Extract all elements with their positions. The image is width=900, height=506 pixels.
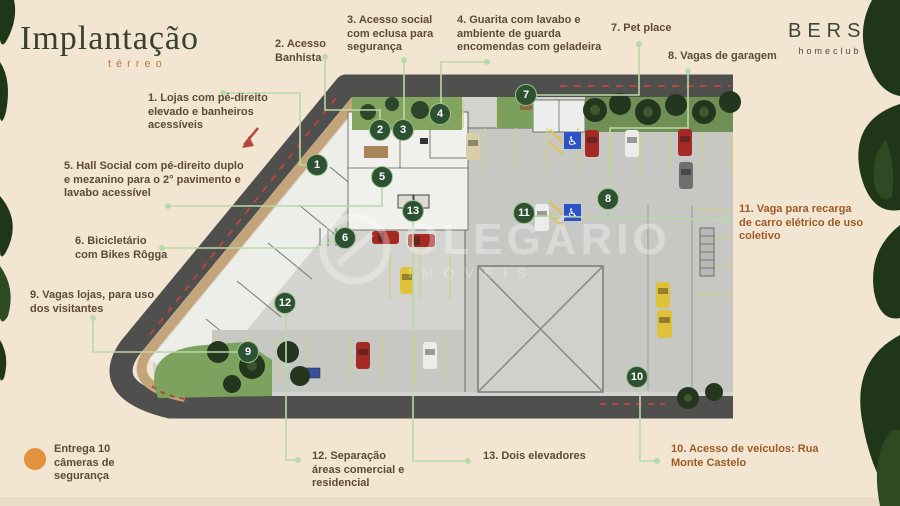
plan-marker-5: 5 — [371, 166, 393, 188]
plan-marker-13: 13 — [402, 200, 424, 222]
security-note-text: Entrega 10 câmeras de segurança — [54, 443, 138, 484]
annotation-label-4: 4. Guarita com lavabo e ambiente de guar… — [457, 14, 619, 55]
plan-marker-3: 3 — [392, 119, 414, 141]
plan-marker-7: 7 — [515, 84, 537, 106]
annotation-label-7: 7. Pet place — [611, 22, 721, 36]
annotation-label-2: 2. Acesso Banhista — [275, 38, 345, 65]
brand-logo: BERSI homeclub — [788, 20, 872, 56]
accessible-parking-icon: ♿ — [567, 134, 578, 148]
annotation-label-10: 10. Acesso de veículos: Rua Monte Castel… — [671, 443, 839, 470]
stairs — [700, 228, 714, 276]
brand-name: BERSI — [788, 20, 872, 43]
watermark-logo-icon — [318, 212, 392, 286]
plan-marker-4: 4 — [429, 103, 451, 125]
page-title: Implantação — [20, 20, 199, 58]
plan-marker-10: 10 — [626, 366, 648, 388]
annotation-label-1: 1. Lojas com pé-direito elevado e banhei… — [148, 92, 280, 133]
plan-marker-12: 12 — [274, 292, 296, 314]
annotation-label-6: 6. Bicicletário com Bikes Rôgga — [75, 235, 171, 262]
watermark: OLEGÁRIO IMÓVEIS — [318, 212, 671, 286]
annotation-label-11: 11. Vaga para recarga de carro elétrico … — [739, 203, 867, 244]
brand-tagline: homeclub — [788, 46, 872, 56]
watermark-subtitle: IMÓVEIS — [404, 265, 671, 281]
annotation-label-9: 9. Vagas lojas, para uso dos visitantes — [30, 289, 170, 316]
annotation-label-5: 5. Hall Social com pé-direito duplo e me… — [64, 160, 252, 201]
page: ♿ ♿ — [0, 0, 900, 506]
plan-marker-2: 2 — [369, 119, 391, 141]
watermark-name: OLEGÁRIO — [404, 218, 671, 262]
plan-marker-8: 8 — [597, 188, 619, 210]
annotation-label-3: 3. Acesso social com eclusa para seguran… — [347, 14, 451, 55]
page-subtitle: térreo — [108, 58, 167, 70]
plan-marker-11: 11 — [513, 202, 535, 224]
plan-marker-6: 6 — [334, 227, 356, 249]
plan-marker-1: 1 — [306, 154, 328, 176]
annotation-label-12: 12. Separação áreas comercial e residenc… — [312, 450, 412, 491]
plan-marker-9: 9 — [237, 341, 259, 363]
annotation-label-13: 13. Dois elevadores — [483, 450, 623, 464]
camera-indicator-icon — [24, 448, 46, 470]
